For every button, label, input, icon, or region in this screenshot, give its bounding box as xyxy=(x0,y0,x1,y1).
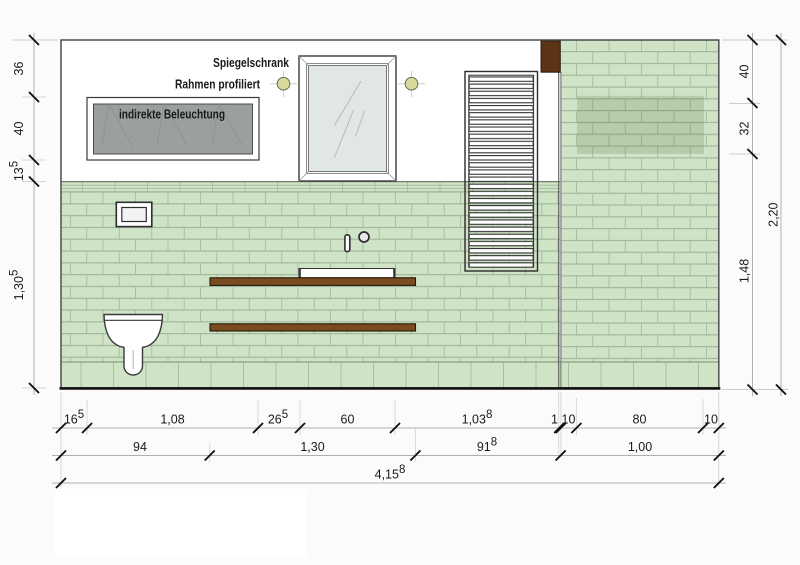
svg-text:10: 10 xyxy=(704,412,718,426)
svg-text:32: 32 xyxy=(738,122,752,136)
svg-text:Spiegelschrank: Spiegelschrank xyxy=(213,55,290,70)
svg-text:80: 80 xyxy=(633,412,647,426)
svg-text:40: 40 xyxy=(12,122,26,136)
svg-text:1,08: 1,08 xyxy=(160,412,184,426)
svg-text:Rahmen profiliert: Rahmen profiliert xyxy=(175,77,261,92)
svg-text:40: 40 xyxy=(738,65,752,79)
svg-text:2,20: 2,20 xyxy=(767,202,781,226)
svg-text:1,48: 1,48 xyxy=(738,259,752,283)
svg-text:10: 10 xyxy=(562,412,576,426)
svg-text:1: 1 xyxy=(551,412,558,426)
svg-text:1,00: 1,00 xyxy=(628,440,652,454)
svg-text:94: 94 xyxy=(133,440,147,454)
svg-text:60: 60 xyxy=(341,412,355,426)
svg-text:1,30: 1,30 xyxy=(300,440,324,454)
svg-text:36: 36 xyxy=(12,62,26,76)
svg-text:indirekte Beleuchtung: indirekte Beleuchtung xyxy=(119,107,225,122)
